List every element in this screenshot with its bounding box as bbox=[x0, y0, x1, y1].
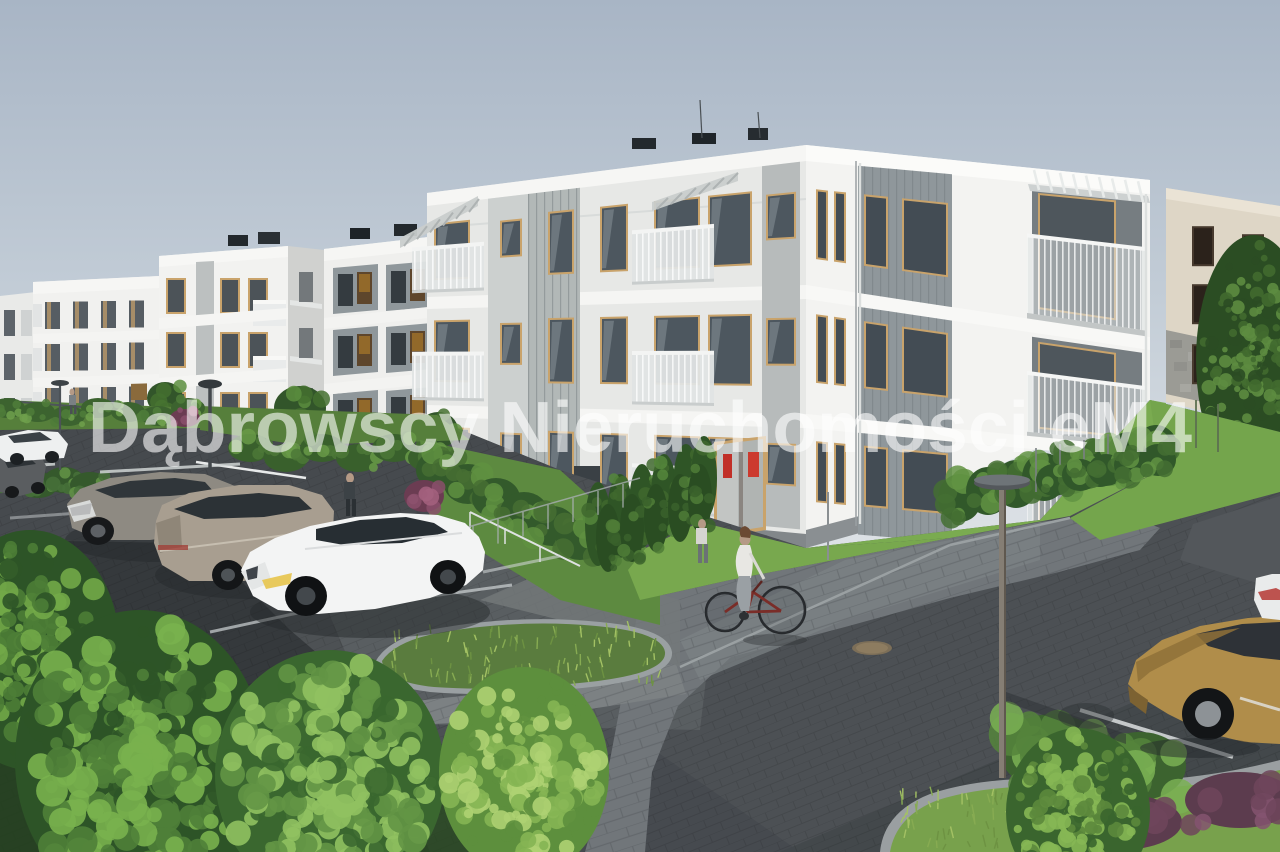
svg-text:Dąbrowscy Nieruchomości eM4: Dąbrowscy Nieruchomości eM4 bbox=[88, 388, 1192, 468]
